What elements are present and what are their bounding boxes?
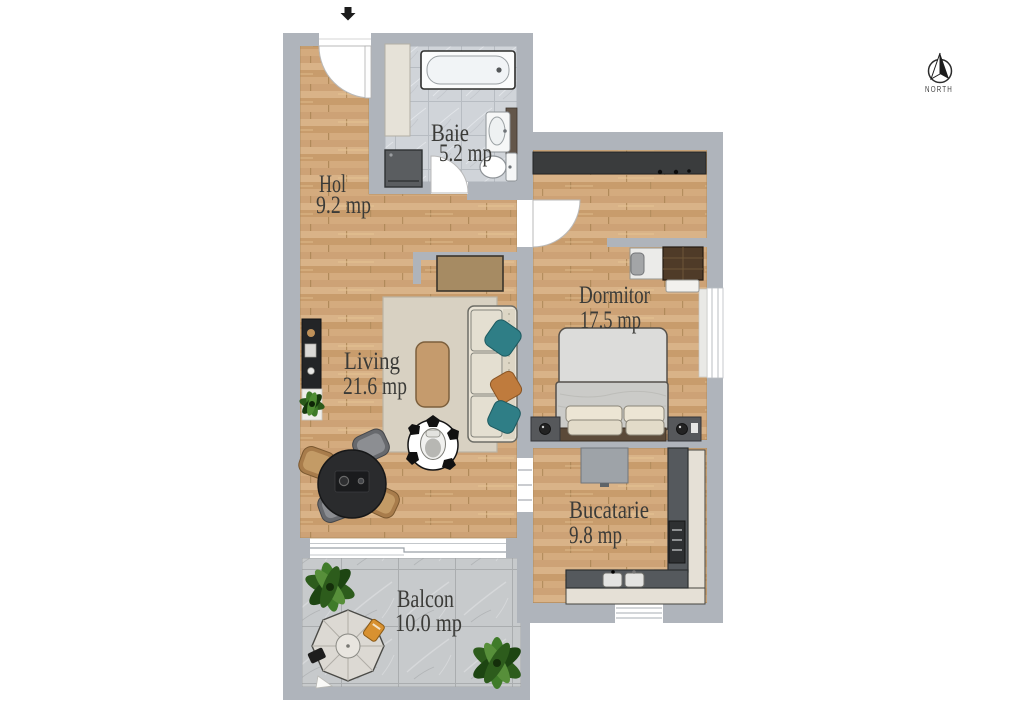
label-dormitor-area: 17.5 mp (580, 307, 641, 334)
floorplan-canvas: Baie 5.2 mp Hol 9.2 mp Dormitor 17.5 mp … (0, 0, 1018, 720)
nightstand-left (531, 417, 560, 441)
sofa (468, 306, 524, 442)
kitchen-table (581, 448, 628, 487)
entry-arrow-icon (341, 7, 356, 21)
label-bucatarie-name: Bucatarie (569, 497, 649, 524)
living-balcony-window (310, 541, 506, 558)
label-living-name: Living (344, 348, 400, 375)
sideboard (437, 256, 503, 291)
dresser (663, 247, 703, 292)
label-living-area: 21.6 mp (343, 373, 407, 400)
bucatarie-window (615, 603, 663, 623)
label-baie-area: 5.2 mp (439, 140, 492, 167)
closet (385, 44, 410, 136)
dormitor-window (699, 288, 723, 378)
label-balcon-area: 10.0 mp (395, 610, 462, 637)
washing-machine (385, 150, 422, 187)
double-bed (556, 328, 668, 441)
label-bucatarie-area: 9.8 mp (569, 522, 622, 549)
coffee-table (416, 342, 449, 407)
bathtub (421, 51, 515, 89)
plant-living (298, 389, 326, 420)
wardrobe (533, 152, 706, 174)
stove (669, 521, 685, 563)
nightstand-right (668, 417, 701, 441)
desk-and-chair (630, 248, 664, 279)
label-balcon-name: Balcon (397, 586, 454, 613)
floorplan-svg: Baie 5.2 mp Hol 9.2 mp Dormitor 17.5 mp … (0, 0, 1018, 720)
north-compass-icon: NORTH (925, 53, 953, 94)
bucatarie-opening (517, 458, 533, 512)
label-dormitor-name: Dormitor (579, 282, 651, 309)
label-hol-area: 9.2 mp (316, 192, 371, 219)
north-label: NORTH (925, 85, 953, 94)
tv-unit (302, 319, 321, 389)
